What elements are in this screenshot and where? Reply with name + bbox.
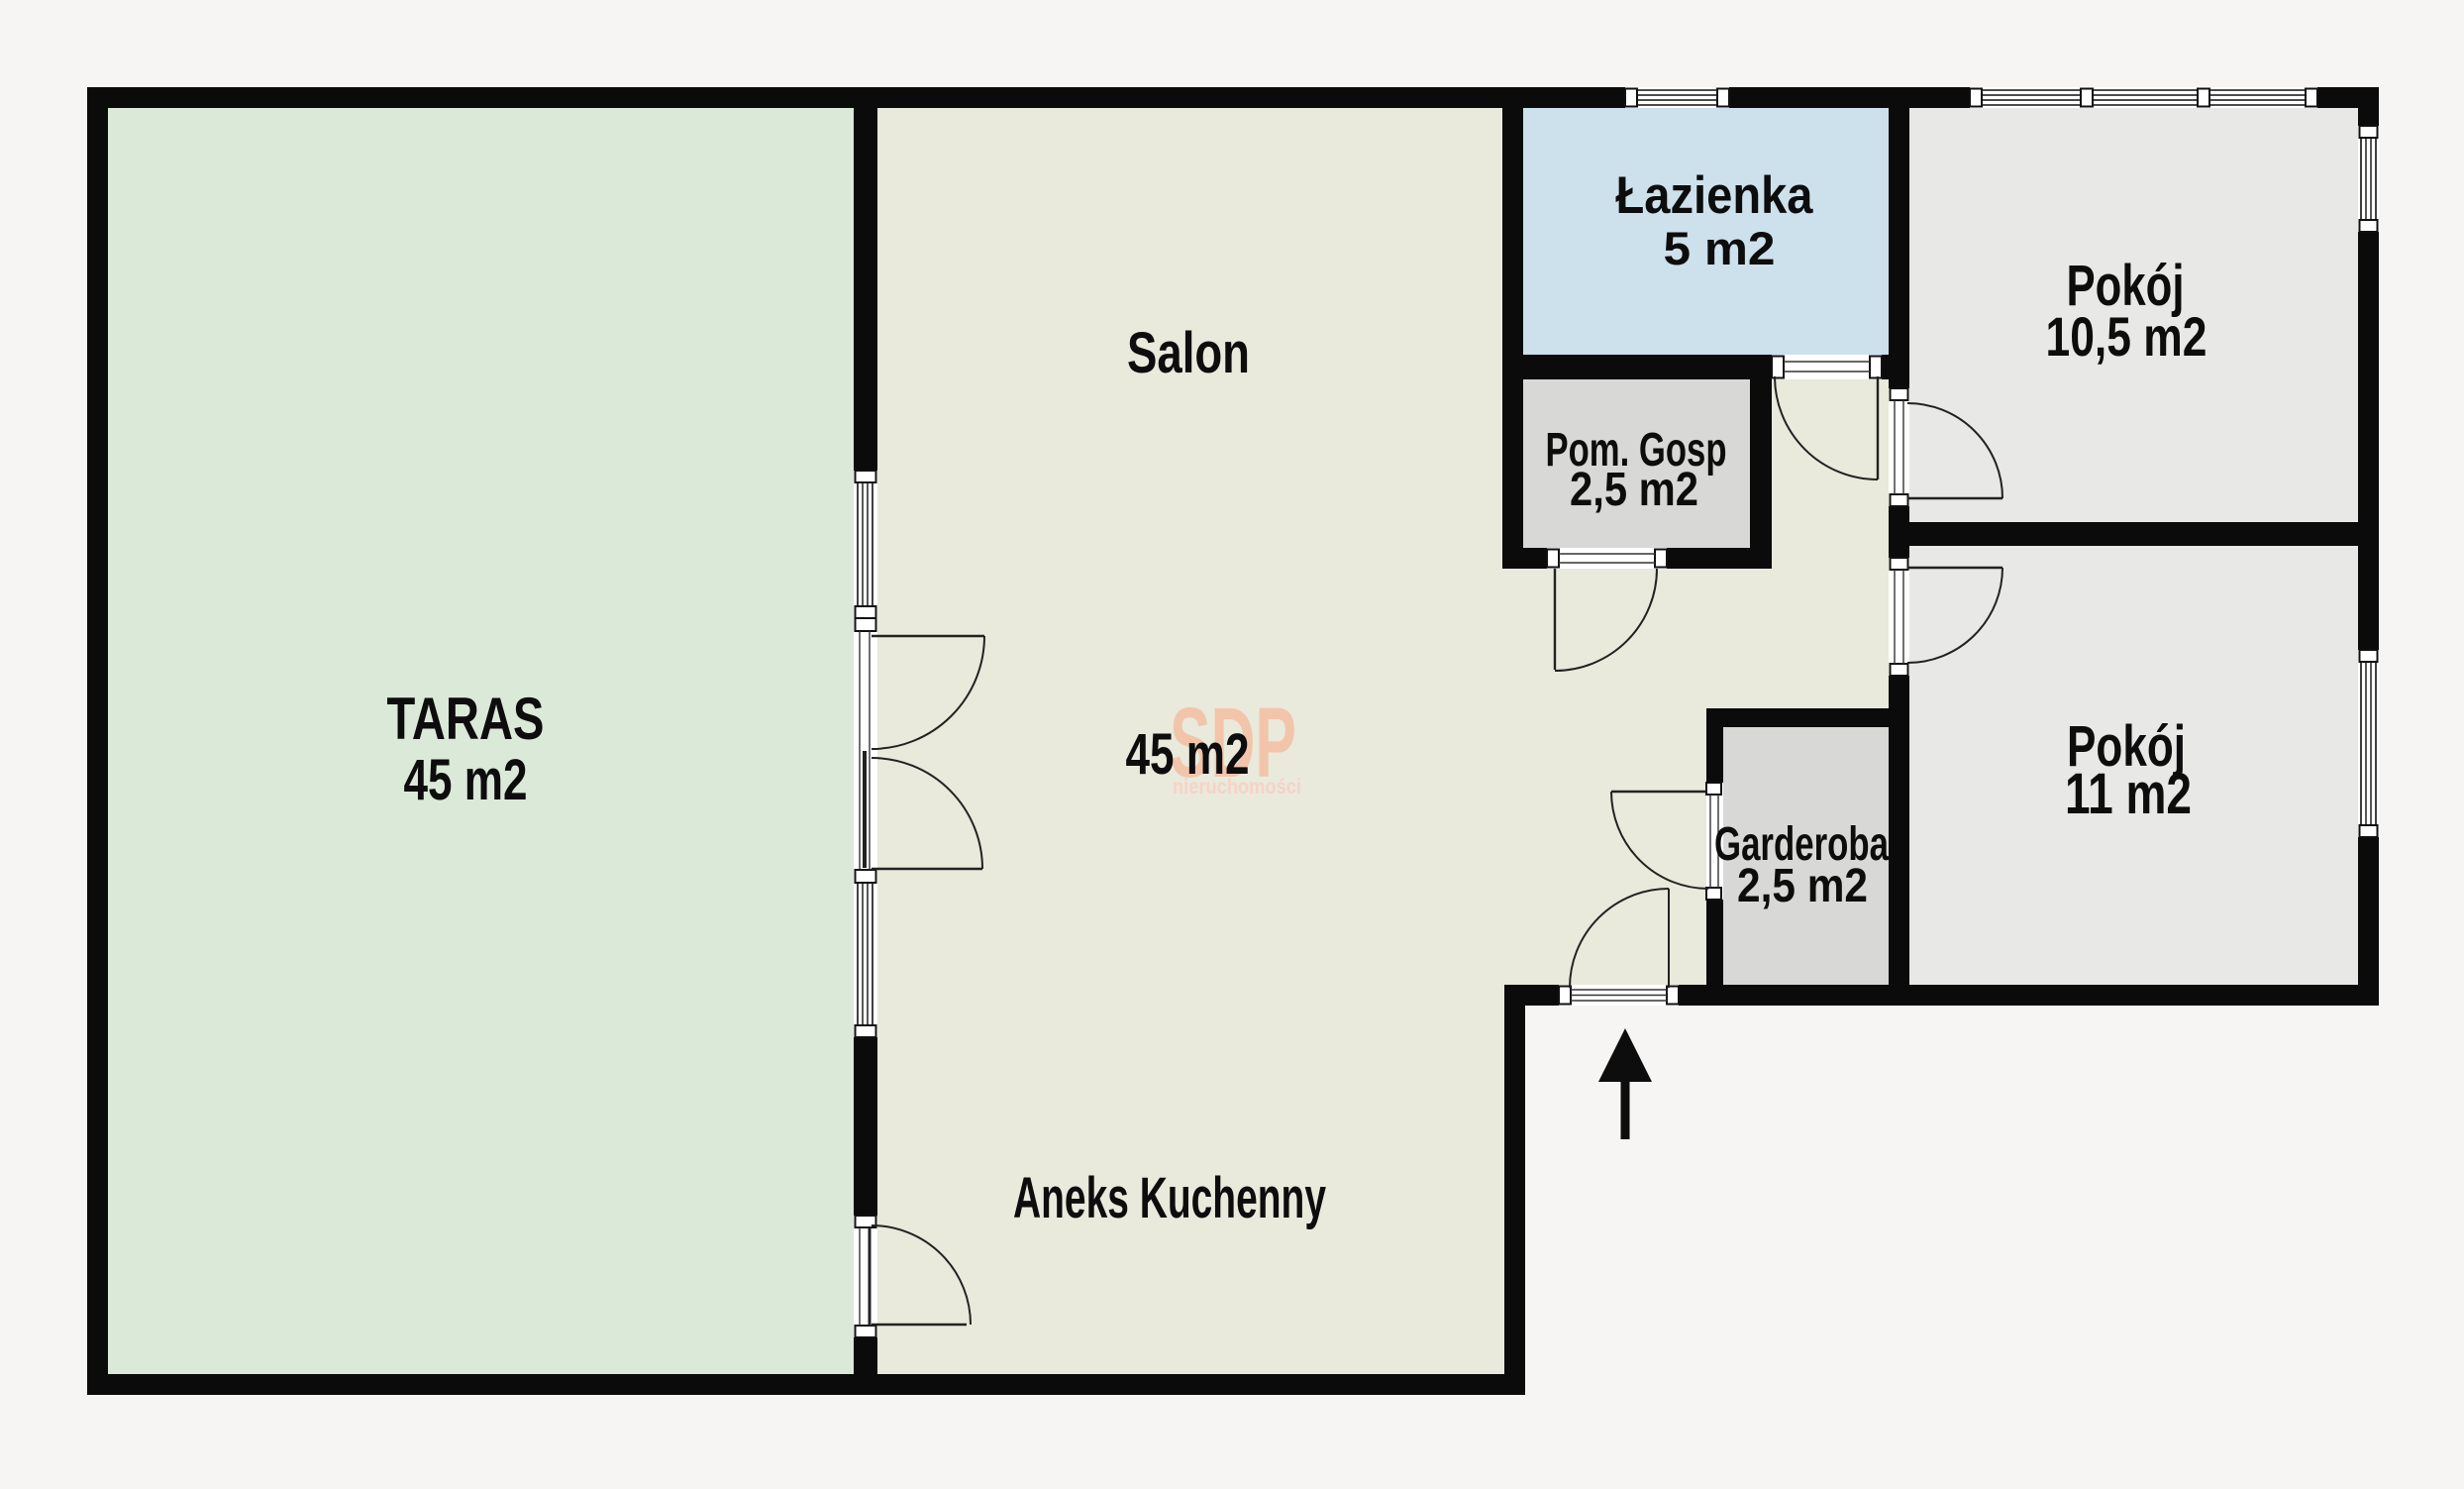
svg-text:Aneks Kuchenny: Aneks Kuchenny <box>1013 1166 1326 1230</box>
svg-text:45 m2: 45 m2 <box>1126 722 1250 787</box>
svg-text:2,5 m2: 2,5 m2 <box>1737 860 1868 912</box>
svg-text:Łazienka: Łazienka <box>1616 166 1813 225</box>
svg-text:10,5 m2: 10,5 m2 <box>2046 305 2207 368</box>
svg-text:2,5 m2: 2,5 m2 <box>1570 464 1698 516</box>
svg-text:TARAS: TARAS <box>387 686 545 752</box>
svg-text:11 m2: 11 m2 <box>2065 762 2192 826</box>
svg-text:45 m2: 45 m2 <box>404 748 528 812</box>
svg-text:Salon: Salon <box>1127 321 1250 385</box>
svg-text:5 m2: 5 m2 <box>1664 222 1776 274</box>
